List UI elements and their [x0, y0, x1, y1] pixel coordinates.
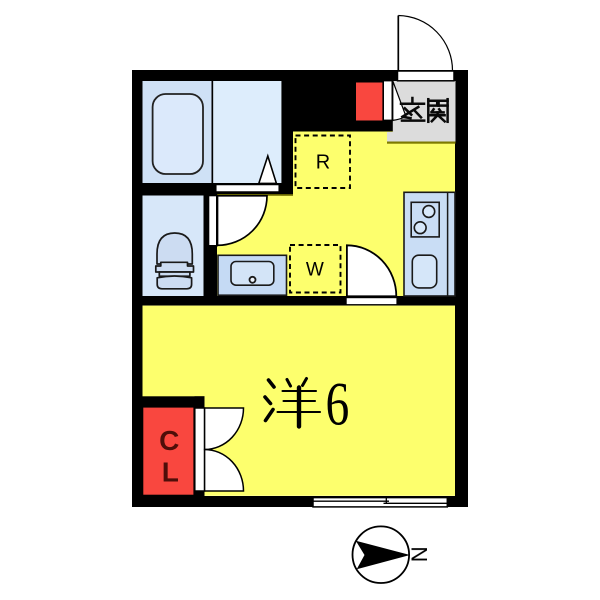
svg-text:C: C	[159, 425, 179, 456]
svg-text:6: 6	[326, 370, 350, 438]
svg-text:W: W	[306, 259, 324, 280]
svg-text:N: N	[407, 546, 432, 562]
svg-text:L: L	[162, 456, 179, 487]
svg-text:R: R	[316, 152, 330, 174]
